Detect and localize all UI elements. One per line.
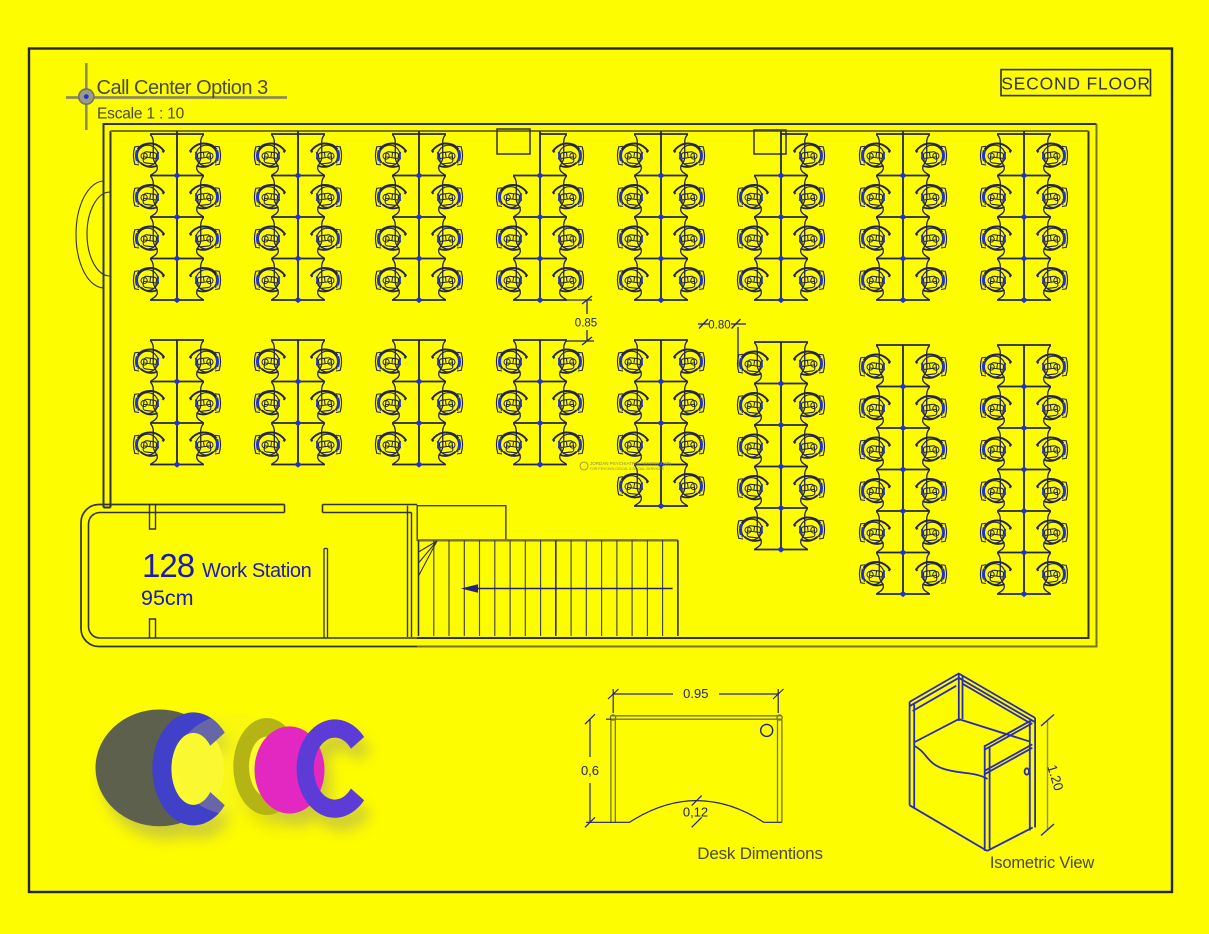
svg-text:0.80: 0.80 (708, 320, 730, 332)
svg-text:Escale 1 : 10: Escale 1 : 10 (97, 106, 185, 123)
svg-text:Work Station: Work Station (202, 560, 311, 582)
svg-text:Isometric View: Isometric View (990, 854, 1094, 872)
svg-text:0.95: 0.95 (683, 686, 708, 701)
svg-text:0.85: 0.85 (575, 318, 597, 330)
svg-text:128: 128 (142, 547, 194, 584)
svg-text:Call Center Option 3: Call Center Option 3 (97, 77, 269, 99)
svg-text:0,12: 0,12 (683, 805, 708, 820)
svg-text:JORDAN PSYCHIATRIC ASSOCIATION: JORDAN PSYCHIATRIC ASSOCIATION (590, 461, 671, 466)
svg-text:95cm: 95cm (141, 586, 194, 610)
svg-text:SECOND FLOOR: SECOND FLOOR (1001, 74, 1151, 94)
svg-text:Desk Dimentions: Desk Dimentions (697, 844, 823, 863)
svg-text:0,6: 0,6 (581, 763, 599, 778)
svg-text:FOR PSYCHOLOGICAL & SOCIAL SER: FOR PSYCHOLOGICAL & SOCIAL SERVICES (590, 467, 664, 471)
